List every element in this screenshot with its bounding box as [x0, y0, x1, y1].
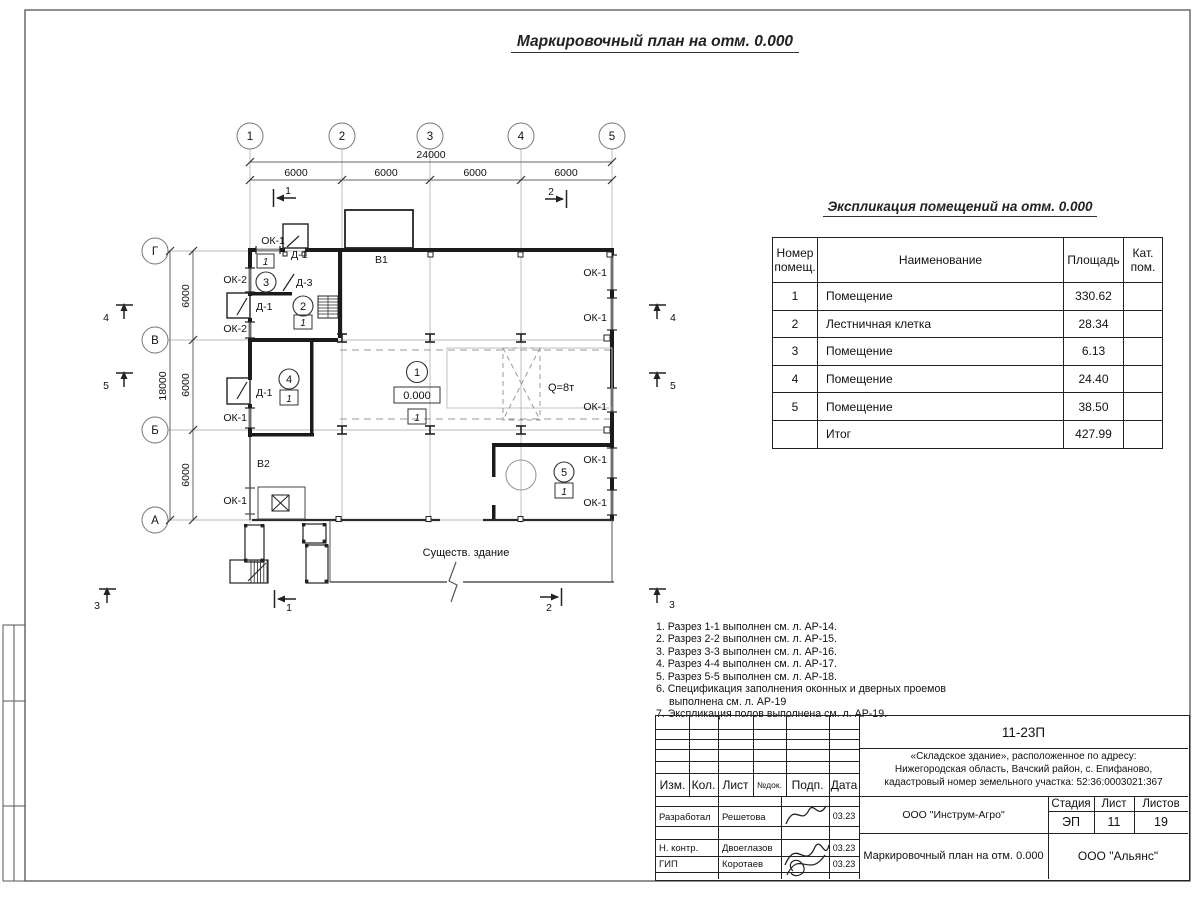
cell-area: 24.40 — [1064, 365, 1124, 393]
col-header-num: Номер помещ. — [773, 238, 818, 283]
sheet-label: Лист — [1094, 796, 1134, 811]
elevation-value: 0.000 — [403, 390, 431, 402]
floor-mark: 1 — [561, 487, 567, 498]
axis-label: В — [151, 335, 159, 347]
cell-num: 2 — [773, 310, 818, 338]
window-label: ОК-1 — [583, 497, 607, 509]
door-label: Д-3 — [296, 277, 313, 289]
role-name: Решетова — [722, 812, 766, 823]
floor-mark: 1 — [286, 394, 292, 405]
section-number: 3 — [94, 600, 100, 612]
cell-num: 1 — [773, 283, 818, 311]
role-name: Коротаев — [722, 859, 763, 870]
title-block: Изм. Кол. Лист №док. Подп. Дата Разработ… — [655, 715, 1190, 881]
role-date: 03.23 — [829, 808, 859, 824]
cell-num — [773, 420, 818, 448]
role-date: 03.23 — [829, 856, 859, 872]
crane-label: Q=8т — [548, 382, 574, 394]
col-header-cat: Кат. пом. — [1124, 238, 1163, 283]
side-stamp — [3, 625, 25, 881]
cell-cat — [1124, 420, 1163, 448]
stage-value: ЭП — [1048, 811, 1094, 833]
section-number: 5 — [103, 380, 109, 392]
existing-building — [330, 520, 614, 602]
dim-total-height: 18000 — [157, 371, 169, 400]
dim-bay: 6000 — [284, 167, 308, 179]
window-label: ОК-1 — [583, 267, 607, 279]
page-title: Маркировочный план на отм. 0.000 — [400, 33, 910, 51]
axis-label: 1 — [247, 131, 253, 143]
axis-bubbles — [142, 123, 625, 533]
stairs-symbol — [318, 296, 338, 318]
axis-label: 4 — [518, 131, 525, 143]
section-number: 1 — [286, 602, 292, 614]
role-label: Разработал — [659, 812, 711, 823]
note-item: 5. Разрез 5-5 выполнен см. л. АР-18. — [656, 671, 992, 683]
cell-cat — [1124, 310, 1163, 338]
floor-mark: 1 — [263, 257, 269, 268]
org2-name: ООО "Альянс" — [1048, 833, 1188, 879]
vent-label: В1 — [375, 254, 388, 266]
explication-title: Экспликация помещений на отм. 0.000 — [790, 198, 1130, 216]
vent-label: В2 — [257, 458, 270, 470]
table-row: 3 Помещение 6.13 — [773, 338, 1163, 366]
dimension-texts: 24000 6000 6000 6000 6000 18000 6000 600… — [157, 149, 578, 487]
room-number: 1 — [414, 367, 420, 379]
axis-label: Б — [151, 425, 159, 437]
equipment-symbol — [258, 487, 305, 519]
section-number: 5 — [670, 380, 676, 392]
window-label: ОК-1 — [223, 412, 247, 424]
plan-title-text: Маркировочный план на отм. 0.000 — [511, 33, 799, 53]
stage-label: Стадия — [1048, 796, 1094, 811]
loading-dock — [230, 523, 328, 583]
cell-num: 4 — [773, 365, 818, 393]
role-name: Двоеглазов — [722, 843, 773, 854]
cell-area: 28.34 — [1064, 310, 1124, 338]
cell-area: 38.50 — [1064, 393, 1124, 421]
window-label: ОК-2 — [223, 274, 247, 286]
col-podp: Подп. — [786, 774, 829, 796]
dim-bay: 6000 — [374, 167, 398, 179]
drawing-name: Маркировочный план на отм. 0.000 — [859, 833, 1048, 879]
room-number: 3 — [263, 277, 269, 289]
door-symbols — [227, 210, 413, 404]
signature — [781, 835, 831, 879]
cell-cat — [1124, 338, 1163, 366]
role-label: Н. контр. — [659, 843, 698, 854]
axis-label: Г — [152, 246, 159, 258]
door-label: Д-1 — [291, 249, 308, 261]
section-number: 1 — [285, 185, 291, 197]
room-number: 5 — [561, 467, 567, 479]
table-row: 1 Помещение 330.62 — [773, 283, 1163, 311]
col-header-area: Площадь — [1064, 238, 1124, 283]
cell-area: 330.62 — [1064, 283, 1124, 311]
cell-name: Помещение — [818, 283, 1064, 311]
axis-label: А — [151, 515, 159, 527]
section-number: 2 — [546, 602, 552, 614]
notes-list: 1. Разрез 1-1 выполнен см. л. АР-14. 2. … — [656, 621, 992, 721]
section-number: 3 — [669, 599, 675, 611]
thin-walls — [245, 437, 614, 520]
role-label: ГИП — [659, 859, 678, 870]
cell-name: Помещение — [818, 365, 1064, 393]
room-number: 4 — [286, 374, 292, 386]
col-list: Лист — [718, 774, 753, 796]
cell-num: 3 — [773, 338, 818, 366]
table-header-row: Номер помещ. Наименование Площадь Кат. п… — [773, 238, 1163, 283]
window-label: ОК-2 — [223, 323, 247, 335]
cell-area: 6.13 — [1064, 338, 1124, 366]
project-line: Нижегородская область, Вачский район, с.… — [859, 763, 1188, 776]
door-label: Д-1 — [256, 301, 273, 313]
col-header-name: Наименование — [818, 238, 1064, 283]
section-number: 4 — [670, 312, 676, 324]
explication-table: Номер помещ. Наименование Площадь Кат. п… — [772, 237, 1163, 449]
room-number: 2 — [300, 301, 306, 313]
note-item: 3. Разрез 3-3 выполнен см. л. АР-16. — [656, 646, 992, 658]
note-item: 1. Разрез 1-1 выполнен см. л. АР-14. — [656, 621, 992, 633]
window-label: ОК-1 — [223, 495, 247, 507]
note-item: 2. Разрез 2-2 выполнен см. л. АР-15. — [656, 633, 992, 645]
dim-bay: 6000 — [180, 463, 192, 487]
table-row: 4 Помещение 24.40 — [773, 365, 1163, 393]
canopy — [345, 210, 413, 248]
floor-mark: 1 — [414, 413, 420, 424]
col-izm: Изм. — [656, 774, 689, 796]
section-number: 2 — [548, 186, 554, 198]
explication-title-text: Экспликация помещений на отм. 0.000 — [823, 199, 1096, 217]
drawing-sheet: 1 2 3 4 5 Г В Б А 24000 6000 6000 6000 6… — [0, 0, 1200, 900]
sheet-number: 11 — [1094, 811, 1134, 833]
project-line: кадастровый номер земельного участка: 52… — [859, 776, 1188, 789]
axis-labels: 1 2 3 4 5 Г В Б А — [151, 131, 615, 527]
window-label: ОК-1 — [583, 454, 607, 466]
sheets-label: Листов — [1134, 796, 1188, 811]
org-name: ООО "Инструм-Агро" — [859, 796, 1048, 833]
cell-cat — [1124, 393, 1163, 421]
dimensions — [166, 158, 616, 524]
cell-name: Лестничная клетка — [818, 310, 1064, 338]
project-line: «Складское здание», расположенное по адр… — [859, 750, 1188, 763]
cell-name: Помещение — [818, 393, 1064, 421]
window-label: ОК-1 — [583, 401, 607, 413]
col-ndok: №док. — [753, 774, 786, 796]
table-row: 5 Помещение 38.50 — [773, 393, 1163, 421]
cell-cat — [1124, 365, 1163, 393]
existing-building-label: Существ. здание — [423, 547, 510, 559]
dim-bay: 6000 — [463, 167, 487, 179]
table-row: 2 Лестничная клетка 28.34 — [773, 310, 1163, 338]
col-kol: Кол. — [689, 774, 718, 796]
dock-posts — [244, 523, 328, 583]
section-number: 4 — [103, 312, 109, 324]
window-label: ОК-1 — [261, 235, 285, 247]
cell-num: 5 — [773, 393, 818, 421]
dim-total-width: 24000 — [416, 149, 445, 161]
axis-label: 3 — [427, 131, 433, 143]
cell-name: Помещение — [818, 338, 1064, 366]
dim-bay: 6000 — [554, 167, 578, 179]
signature — [783, 800, 829, 828]
grid-axes — [168, 149, 614, 523]
doc-number: 11-23П — [859, 718, 1188, 746]
floor-mark: 1 — [300, 318, 306, 329]
role-date: 03.23 — [829, 840, 859, 856]
dimension-ticks — [166, 158, 616, 524]
sheets-total: 19 — [1134, 811, 1188, 833]
cell-area: 427.99 — [1064, 420, 1124, 448]
note-item: 4. Разрез 4-4 выполнен см. л. АР-17. — [656, 658, 992, 670]
table-row-total: Итог 427.99 — [773, 420, 1163, 448]
axis-label: 2 — [339, 131, 345, 143]
cell-name: Итог — [818, 420, 1064, 448]
window-label: ОК-1 — [583, 312, 607, 324]
col-data: Дата — [829, 774, 859, 796]
dim-bay: 6000 — [180, 284, 192, 308]
dim-bay: 6000 — [180, 373, 192, 397]
cell-cat — [1124, 283, 1163, 311]
axis-label: 5 — [609, 131, 615, 143]
door-label: Д-1 — [256, 387, 273, 399]
note-item: 6. Спецификация заполнения оконных и две… — [656, 683, 992, 708]
